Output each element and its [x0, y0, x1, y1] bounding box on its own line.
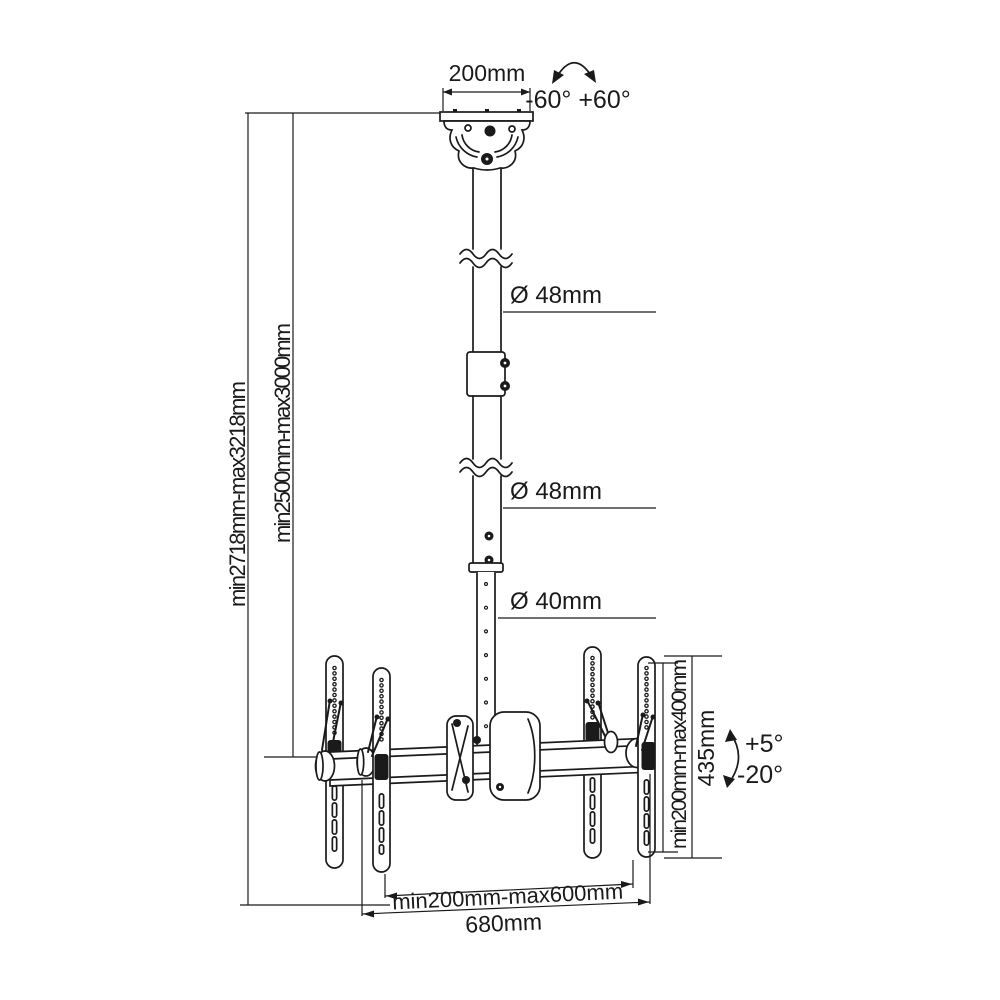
bracket-height-label: 435mm: [693, 710, 719, 787]
swivel-arrowhead-right: [584, 70, 596, 83]
clamp-bolt: [473, 736, 481, 744]
clamp-bolt: [453, 719, 461, 727]
clamp-bolt: [462, 776, 470, 784]
swivel-indicator: -60° +60°: [525, 63, 630, 114]
break-mark-2a: [460, 459, 512, 468]
brace-bolt: [641, 713, 646, 718]
brace-bolt: [386, 717, 391, 722]
brace-bolt: [596, 701, 601, 706]
beam-clamp-block: [642, 742, 656, 770]
brace-bolt: [375, 715, 380, 720]
arrowhead-left: [363, 911, 374, 918]
coupler-bolt-1-center: [504, 362, 507, 365]
swivel-arrowhead-left: [552, 70, 564, 84]
crossbar-width-label: 680mm: [465, 908, 543, 937]
beam-clamp-block: [586, 722, 600, 742]
tilt-up-label: +5°: [745, 730, 784, 758]
pole-segment-4: [473, 476, 501, 563]
brace-bolt: [328, 699, 333, 704]
tilt-arrowhead-up: [725, 729, 737, 742]
middle-diameter-label: Ø 48mm: [510, 478, 602, 505]
dimensions-right: min200mm-max400mm 435mm: [648, 656, 722, 858]
pole-segment-1: [473, 168, 501, 249]
break-mark-1a: [460, 250, 512, 259]
center-bolt: [485, 126, 496, 137]
break-mark-1b: [460, 259, 512, 268]
upper-diameter-label: Ø 48mm: [510, 282, 602, 309]
ceiling-plate: [440, 112, 533, 121]
center-clamp: [447, 712, 540, 800]
arrowhead-left: [443, 89, 452, 96]
telescopic-pole: [460, 168, 512, 746]
coupler-bolt-2-center: [504, 385, 507, 388]
total-height-label: min2718mm-max3218mm: [225, 381, 250, 607]
vesa-height-label: min200mm-max400mm: [668, 659, 691, 849]
dimension-200mm: 200mm: [443, 60, 530, 111]
pivot-bolt-center: [486, 158, 489, 161]
ceiling-tv-mount-diagram: min2718mm-max3218mm min2500mm-max3000mm …: [0, 0, 1000, 1000]
brace-bolt: [585, 699, 590, 704]
plate-width-label: 200mm: [449, 60, 526, 86]
adjust-knob-back-right: [605, 732, 618, 753]
pole-collar: [469, 563, 503, 572]
pole-coupler: [467, 352, 505, 396]
lower-diameter-label: Ø 40mm: [510, 588, 602, 615]
brace-bolt: [651, 715, 656, 720]
arrowhead-right: [638, 899, 649, 906]
swivel-range-label: -60° +60°: [525, 86, 630, 114]
diameter-labels: Ø 48mm Ø 48mm Ø 40mm: [498, 282, 656, 618]
pole-segment-3: [473, 396, 501, 459]
plate-bolt-2: [485, 109, 489, 112]
ceiling-mount-head: [440, 109, 533, 170]
break-mark-2b: [460, 468, 512, 477]
beam-end-knob-left-cap: [316, 752, 323, 780]
tilt-indicator: +5° -20°: [723, 729, 784, 789]
pole-segment-2: [473, 267, 501, 352]
beam-clamp-block: [375, 754, 389, 780]
adjust-knob-front-left-cap: [357, 749, 363, 775]
plate-bolt-1: [453, 109, 457, 112]
lock-bolt-2-center: [488, 559, 491, 562]
clamp-bolt-center: [499, 786, 501, 788]
plate-bolt-3: [517, 109, 521, 112]
vesa-bracket-front-right: [636, 657, 656, 857]
tilt-down-label: -20°: [737, 761, 783, 789]
lock-bolt-1-center: [488, 535, 491, 538]
mount-diagram-svg: min2718mm-max3218mm min2500mm-max3000mm …: [0, 0, 1000, 1000]
drop-height-label: min2500mm-max3000mm: [270, 323, 295, 543]
brace-bolt: [339, 701, 344, 706]
